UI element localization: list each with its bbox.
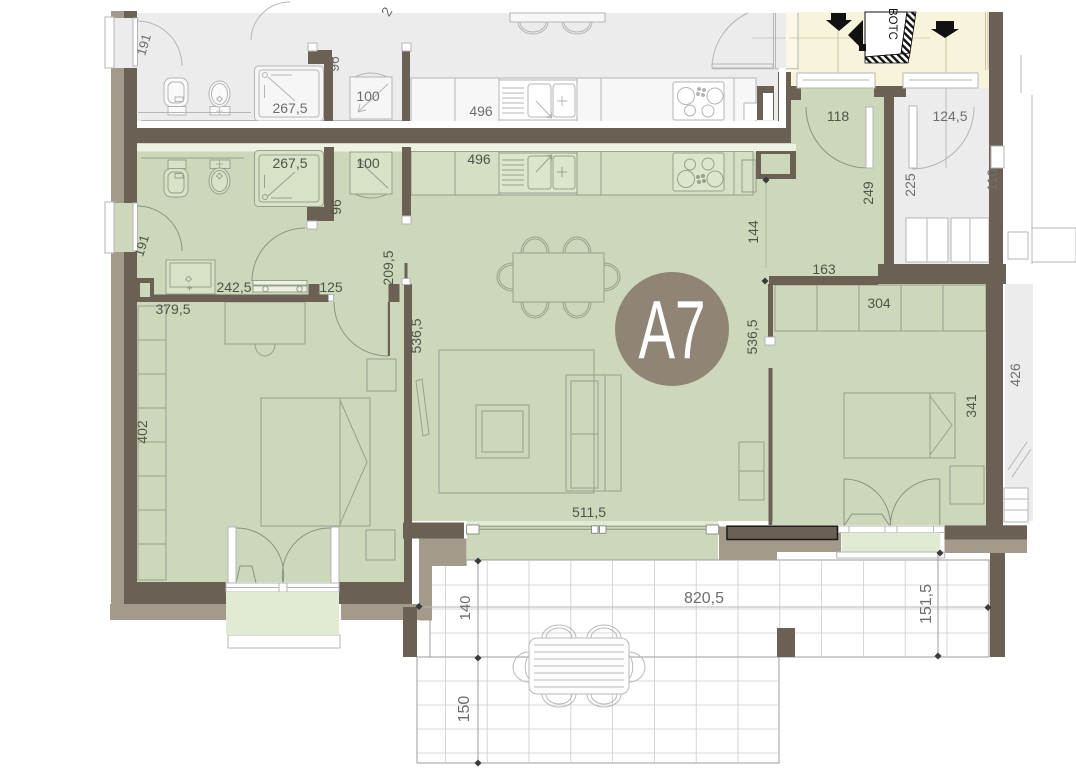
svg-text:496: 496 <box>469 103 493 119</box>
svg-text:242,5: 242,5 <box>216 279 251 295</box>
svg-text:BOTC: BOTC <box>886 8 898 40</box>
svg-text:209,5: 209,5 <box>380 250 396 285</box>
svg-text:267,5: 267,5 <box>272 100 307 116</box>
svg-text:402: 402 <box>134 420 150 444</box>
svg-text:341: 341 <box>963 394 979 418</box>
svg-text:536,5: 536,5 <box>408 318 424 353</box>
svg-text:110: 110 <box>984 169 1000 192</box>
svg-text:536,5: 536,5 <box>744 319 760 354</box>
svg-text:163: 163 <box>812 261 836 277</box>
svg-text:820,5: 820,5 <box>684 590 724 607</box>
svg-text:304: 304 <box>867 295 891 311</box>
svg-text:124,5: 124,5 <box>932 108 967 124</box>
svg-text:140: 140 <box>457 595 474 620</box>
svg-text:A7: A7 <box>638 282 705 375</box>
svg-text:249: 249 <box>860 181 876 205</box>
svg-text:100: 100 <box>356 155 380 171</box>
svg-text:100: 100 <box>356 88 380 104</box>
svg-text:125: 125 <box>319 279 343 295</box>
svg-text:96: 96 <box>326 56 342 72</box>
svg-text:150: 150 <box>456 696 473 723</box>
svg-text:96: 96 <box>328 199 344 215</box>
svg-text:225: 225 <box>902 173 918 197</box>
svg-text:511,5: 511,5 <box>572 504 606 520</box>
svg-text:426: 426 <box>1007 363 1023 387</box>
svg-text:267,5: 267,5 <box>272 155 307 171</box>
svg-text:379,5: 379,5 <box>155 301 190 317</box>
svg-text:496: 496 <box>467 151 491 167</box>
svg-text:151,5: 151,5 <box>918 584 935 624</box>
svg-text:144: 144 <box>745 220 761 244</box>
svg-text:118: 118 <box>827 108 850 124</box>
